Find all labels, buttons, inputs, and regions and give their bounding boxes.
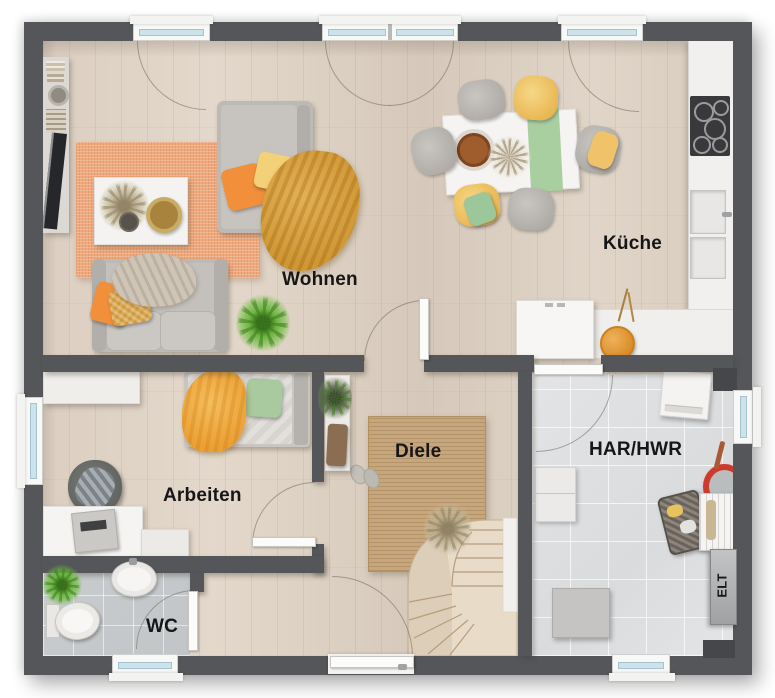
window-top-2-double: [322, 22, 458, 41]
interior-wall: [190, 573, 204, 592]
books: [47, 74, 64, 82]
window-sill: [130, 16, 213, 24]
burner: [713, 100, 729, 116]
window-bottom-hwr: [612, 654, 670, 675]
hwr-cabinet: [535, 467, 576, 522]
window-top-1: [133, 22, 210, 41]
cabinet-handle: [557, 303, 565, 307]
door-leaf-hwr: [534, 364, 603, 375]
window-glass: [740, 396, 747, 438]
window-glass: [118, 662, 172, 669]
room-label-diele: Diele: [395, 441, 441, 463]
tv: [42, 132, 67, 229]
window-glass: [567, 29, 637, 36]
board-item: [706, 500, 716, 540]
chimney-block: [713, 368, 737, 391]
interior-wall: [518, 372, 532, 656]
window-sill: [558, 16, 646, 24]
room-label-elt: ELT: [715, 566, 730, 606]
exterior-wall-left: [24, 22, 43, 675]
window-left-arbeiten: [23, 397, 43, 485]
sofa-armrest: [214, 259, 228, 352]
burner: [712, 137, 728, 153]
window-sill: [17, 394, 25, 488]
room-label-arbeiten: Arbeiten: [163, 485, 242, 507]
floor-plan: Wohnen Küche Ar: [0, 0, 775, 698]
deco-tray: [146, 197, 182, 233]
printer: [71, 509, 119, 553]
window-glass: [139, 29, 204, 36]
hanging-bag: [326, 424, 348, 467]
wall-shelf: [43, 369, 140, 404]
printer-slot: [80, 520, 107, 532]
window-sill: [319, 16, 461, 24]
interior-wall: [424, 355, 534, 372]
sofa-cushion: [160, 311, 216, 351]
window-mullion: [388, 23, 392, 40]
window-sill: [753, 387, 761, 447]
interior-wall: [43, 355, 364, 372]
washing-machine: [659, 369, 712, 420]
blanket-yellow: [182, 370, 246, 452]
dining-table: [442, 109, 580, 196]
room-label-wohnen: Wohnen: [282, 269, 358, 291]
window-glass: [30, 403, 37, 479]
washer-panel: [664, 404, 702, 414]
window-sill: [109, 673, 183, 681]
window-glass: [396, 29, 454, 36]
books: [46, 109, 66, 133]
dining-chair: [507, 186, 556, 231]
burner: [693, 136, 711, 154]
floor-mat-dark: [703, 640, 735, 658]
media-board: [43, 57, 69, 233]
stair-plant: [424, 502, 472, 556]
table-runner: [527, 108, 563, 192]
window-glass: [618, 662, 664, 669]
room-label-har-hwr: HAR/HWR: [589, 439, 682, 461]
cabinet-shelf-line: [536, 493, 575, 494]
storage-box: [552, 588, 610, 638]
window-sill: [609, 673, 675, 681]
hall-plant: [318, 374, 352, 422]
laundry-cloth: [666, 503, 684, 519]
desk-extension: [141, 529, 189, 559]
cabinet-handle: [545, 303, 553, 307]
door-leaf-arbeiten: [252, 537, 316, 547]
kitchen-cabinet: [516, 300, 594, 359]
window-bottom-wc: [112, 654, 178, 675]
kitchen-sink: [690, 190, 726, 234]
flower-bouquet: [486, 134, 532, 180]
headboard: [294, 373, 308, 445]
vase: [119, 212, 139, 232]
dining-chair-yellow: [513, 75, 560, 122]
window-glass: [328, 29, 386, 36]
window-top-3: [561, 22, 643, 41]
room-label-kueche: Küche: [603, 233, 662, 255]
entrance-door-handle: [398, 664, 407, 670]
door-leaf-wohnen: [419, 298, 429, 360]
fern-plant: [236, 293, 290, 353]
speaker: [48, 85, 69, 106]
interior-wall: [43, 556, 324, 573]
books: [46, 61, 65, 71]
cooktop: [690, 96, 730, 156]
window-right-hwr: [733, 390, 753, 444]
room-label-wc: WC: [146, 616, 178, 638]
ironing-board: [699, 493, 736, 551]
faucet: [722, 212, 732, 217]
wc-plant: [42, 564, 82, 606]
wc-sink: [111, 561, 157, 597]
pillow-green: [245, 378, 284, 418]
laundry-cloth: [679, 518, 698, 534]
kitchen-sink: [690, 237, 726, 279]
wc-faucet: [129, 558, 137, 565]
door-leaf-wc: [188, 591, 198, 651]
